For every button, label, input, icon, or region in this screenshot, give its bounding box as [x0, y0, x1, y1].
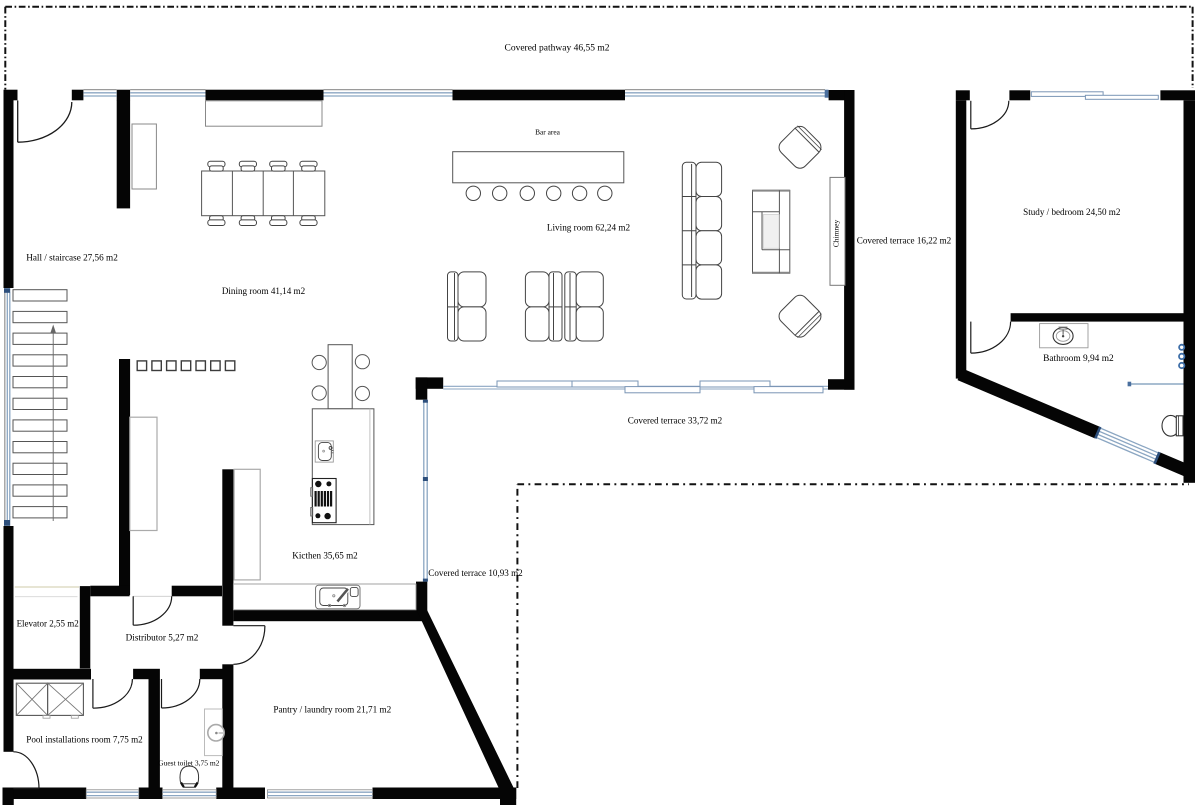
svg-text:Kicthen 35,65 m2: Kicthen 35,65 m2: [292, 551, 358, 561]
svg-text:Pantry / laundry room 21,71 m2: Pantry / laundry room 21,71 m2: [273, 705, 391, 715]
svg-text:Elevator 2,55 m2: Elevator 2,55 m2: [17, 619, 79, 629]
svg-text:Covered terrace 16,22 m2: Covered terrace 16,22 m2: [857, 236, 952, 246]
svg-text:Dining room 41,14 m2: Dining room 41,14 m2: [222, 286, 306, 296]
svg-text:Distributor 5,27 m2: Distributor 5,27 m2: [126, 633, 199, 643]
svg-text:Bar area: Bar area: [535, 128, 561, 137]
svg-text:Chimney: Chimney: [832, 220, 841, 248]
svg-text:Covered pathway 46,55 m2: Covered pathway 46,55 m2: [504, 44, 609, 54]
svg-text:Living room 62,24 m2: Living room 62,24 m2: [547, 223, 631, 233]
svg-text:Bathroom 9,94 m2: Bathroom 9,94 m2: [1043, 354, 1114, 364]
svg-text:Guest toilet 3,75 m2: Guest toilet 3,75 m2: [158, 758, 219, 767]
svg-text:Hall / staircase 27,56 m2: Hall / staircase 27,56 m2: [26, 253, 118, 263]
svg-text:Pool installations room 7,75 m: Pool installations room 7,75 m2: [26, 735, 143, 745]
svg-text:Study / bedroom 24,50 m2: Study / bedroom 24,50 m2: [1023, 207, 1121, 217]
svg-text:Covered terrace 10,93 m2: Covered terrace 10,93 m2: [428, 568, 523, 578]
svg-text:Covered terrace 33,72 m2: Covered terrace 33,72 m2: [628, 416, 723, 426]
